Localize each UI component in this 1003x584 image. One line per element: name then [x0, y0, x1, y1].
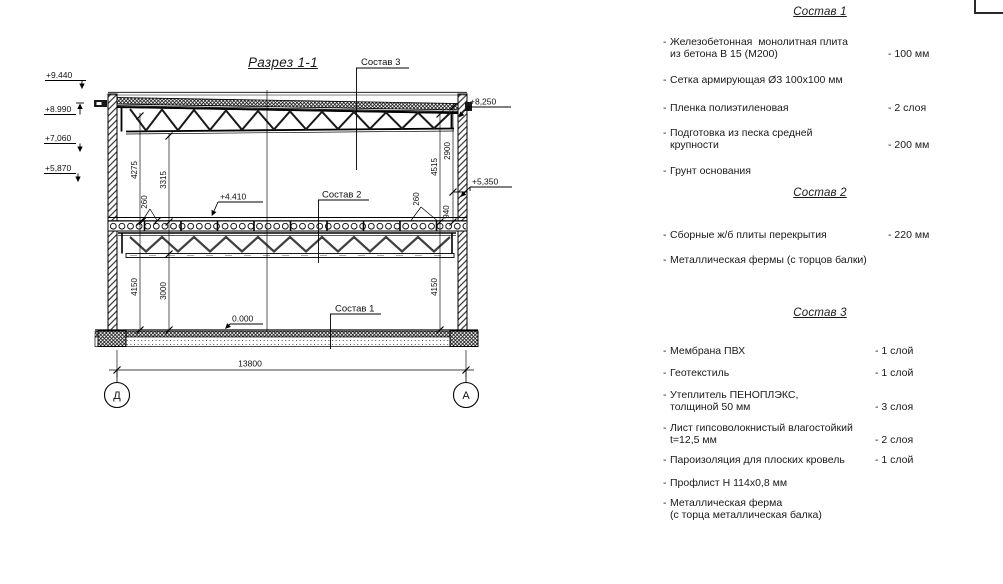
item-value: - 1 слой	[875, 367, 913, 379]
list-item: - Лист гипсоволокнистый влагостойкий t=1…	[663, 422, 978, 446]
section-heading-1: Состав 1	[655, 6, 985, 18]
item-bullet: -	[663, 74, 667, 86]
item-name: Профлист Н 114х0,8 мм	[670, 477, 978, 489]
item-name: Сборные ж/б плиты перекрытия	[670, 229, 978, 241]
list-item: - Грунт основания	[663, 165, 978, 177]
middle-floor	[108, 218, 467, 258]
roof-gutter-slot	[97, 102, 102, 105]
item-bullet: -	[663, 36, 667, 48]
left-wall	[108, 94, 117, 330]
axis-label-left: Д	[113, 390, 121, 402]
item-bullet: -	[663, 422, 667, 434]
leader-sostav-3: Состав 3	[361, 57, 400, 68]
list-item: - Подготовка из песка средней крупности …	[663, 127, 978, 151]
item-bullet: -	[663, 389, 667, 401]
dim-3000: 3000	[159, 282, 168, 300]
dim-260-right: 260	[412, 192, 421, 206]
list-item: - Металлическая ферма (с торца металличе…	[663, 497, 978, 521]
item-bullet: -	[663, 127, 667, 139]
item-value: - 2 слоя	[888, 102, 926, 114]
item-name: Мембрана ПВХ	[670, 345, 978, 357]
item-bullet: -	[663, 254, 667, 266]
axis-label-right: А	[462, 390, 470, 402]
right-foundation	[450, 331, 478, 347]
concrete-slab-band	[95, 331, 478, 337]
dim-2900: 2900	[443, 142, 452, 160]
item-bullet: -	[663, 345, 667, 357]
page: Разрез 1-1	[0, 0, 1003, 584]
item-value: - 1 слой	[875, 454, 913, 466]
roof-truss-bottom-chord	[126, 129, 454, 132]
elev-8990: +8.990	[45, 104, 72, 114]
list-item: - Сборные ж/б плиты перекрытия - 220 мм	[663, 229, 978, 241]
item-name: Пленка полиэтиленовая	[670, 102, 978, 114]
section-heading-2: Состав 2	[655, 187, 985, 199]
item-name: Геотекстиль	[670, 367, 978, 379]
list-item: - Металлическая фермы (с торцов балки)	[663, 254, 978, 266]
item-name: Пароизоляция для плоских кровель	[670, 454, 978, 466]
item-bullet: -	[663, 165, 667, 177]
elevation-marks-left: +9.440 +8.990 +7,060 +5,870	[44, 70, 86, 182]
item-value: - 220 мм	[888, 229, 929, 241]
item-name: Утеплитель ПЕНОПЛЭКС, толщиной 50 мм	[670, 389, 978, 413]
dim-4515: 4515	[430, 158, 439, 176]
elev-4410: +4.410	[220, 192, 247, 202]
dim-260-leaders	[143, 207, 438, 221]
item-bullet: -	[663, 367, 667, 379]
floor-truss-bottom-chord	[126, 254, 454, 258]
dim-4275: 4275	[130, 161, 139, 179]
item-bullet: -	[663, 229, 667, 241]
item-value: - 1 слой	[875, 345, 913, 357]
item-value: - 100 мм	[888, 48, 929, 60]
item-name: Металлическая ферма (с торца металлическ…	[670, 497, 978, 521]
leader-sostav-1: Состав 1	[335, 304, 374, 315]
sand-bed	[95, 337, 478, 347]
list-item: - Мембрана ПВХ - 1 слой	[663, 345, 978, 357]
item-value: - 200 мм	[888, 139, 929, 151]
right-wall	[458, 94, 467, 330]
dim-13800: 13800	[238, 359, 262, 369]
composition-leaders: Состав 3 Состав 2 Состав 1	[318, 57, 409, 349]
elev-0000: 0.000	[232, 314, 254, 324]
list-item: - Геотекстиль - 1 слой	[663, 367, 978, 379]
item-name: Сетка армирующая Ø3 100х100 мм	[670, 74, 978, 86]
bottom-dimension: 13800 Д А	[105, 350, 479, 408]
elev-5870: +5,870	[45, 163, 72, 173]
dim-4150-right: 4150	[430, 278, 439, 296]
elevation-marks-mid: +4.410 0.000	[212, 192, 263, 329]
section-heading-3: Состав 3	[655, 307, 985, 319]
item-bullet: -	[663, 102, 667, 114]
item-name: Грунт основания	[670, 165, 978, 177]
item-bullet: -	[663, 497, 667, 509]
list-item: - Профлист Н 114х0,8 мм	[663, 477, 978, 489]
composition-panel: Состав 1 - Железобетонная монолитная пли…	[655, 0, 985, 584]
list-item: - Железобетонная монолитная плита из бет…	[663, 36, 978, 60]
roof-assembly	[94, 98, 472, 135]
dim-4150-left: 4150	[130, 278, 139, 296]
item-value: - 2 слоя	[875, 434, 913, 446]
item-value: - 3 слоя	[875, 401, 913, 413]
list-item: - Пароизоляция для плоских кровель - 1 с…	[663, 454, 978, 466]
list-item: - Утеплитель ПЕНОПЛЭКС, толщиной 50 мм -…	[663, 389, 978, 413]
floor-slab-voids	[109, 222, 466, 231]
section-drawing: 4275 3315 260 4150 3000 4515 2900 940 26…	[0, 0, 620, 430]
elev-5350: +5,350	[472, 177, 499, 187]
left-foundation	[98, 331, 126, 347]
item-bullet: -	[663, 477, 667, 489]
item-name: Подготовка из песка средней крупности	[670, 127, 978, 151]
item-name: Лист гипсоволокнистый влагостойкий t=12,…	[670, 422, 978, 446]
list-item: - Сетка армирующая Ø3 100х100 мм	[663, 74, 978, 86]
item-name: Железобетонная монолитная плита из бетон…	[670, 36, 978, 60]
elev-7060: +7,060	[45, 133, 72, 143]
elev-9440: +9.440	[46, 70, 73, 80]
floor-truss-diagonals	[130, 237, 450, 252]
item-bullet: -	[663, 454, 667, 466]
dim-940: 940	[442, 205, 451, 219]
dim-3315: 3315	[159, 171, 168, 189]
item-name: Металлическая фермы (с торцов балки)	[670, 254, 978, 266]
dim-260-left: 260	[140, 195, 149, 209]
dimension-lines	[140, 90, 453, 331]
elev-8250: +8,250	[470, 97, 497, 107]
list-item: - Пленка полиэтиленовая - 2 слоя	[663, 102, 978, 114]
leader-sostav-2: Состав 2	[322, 190, 361, 201]
ground-slab	[95, 330, 478, 347]
